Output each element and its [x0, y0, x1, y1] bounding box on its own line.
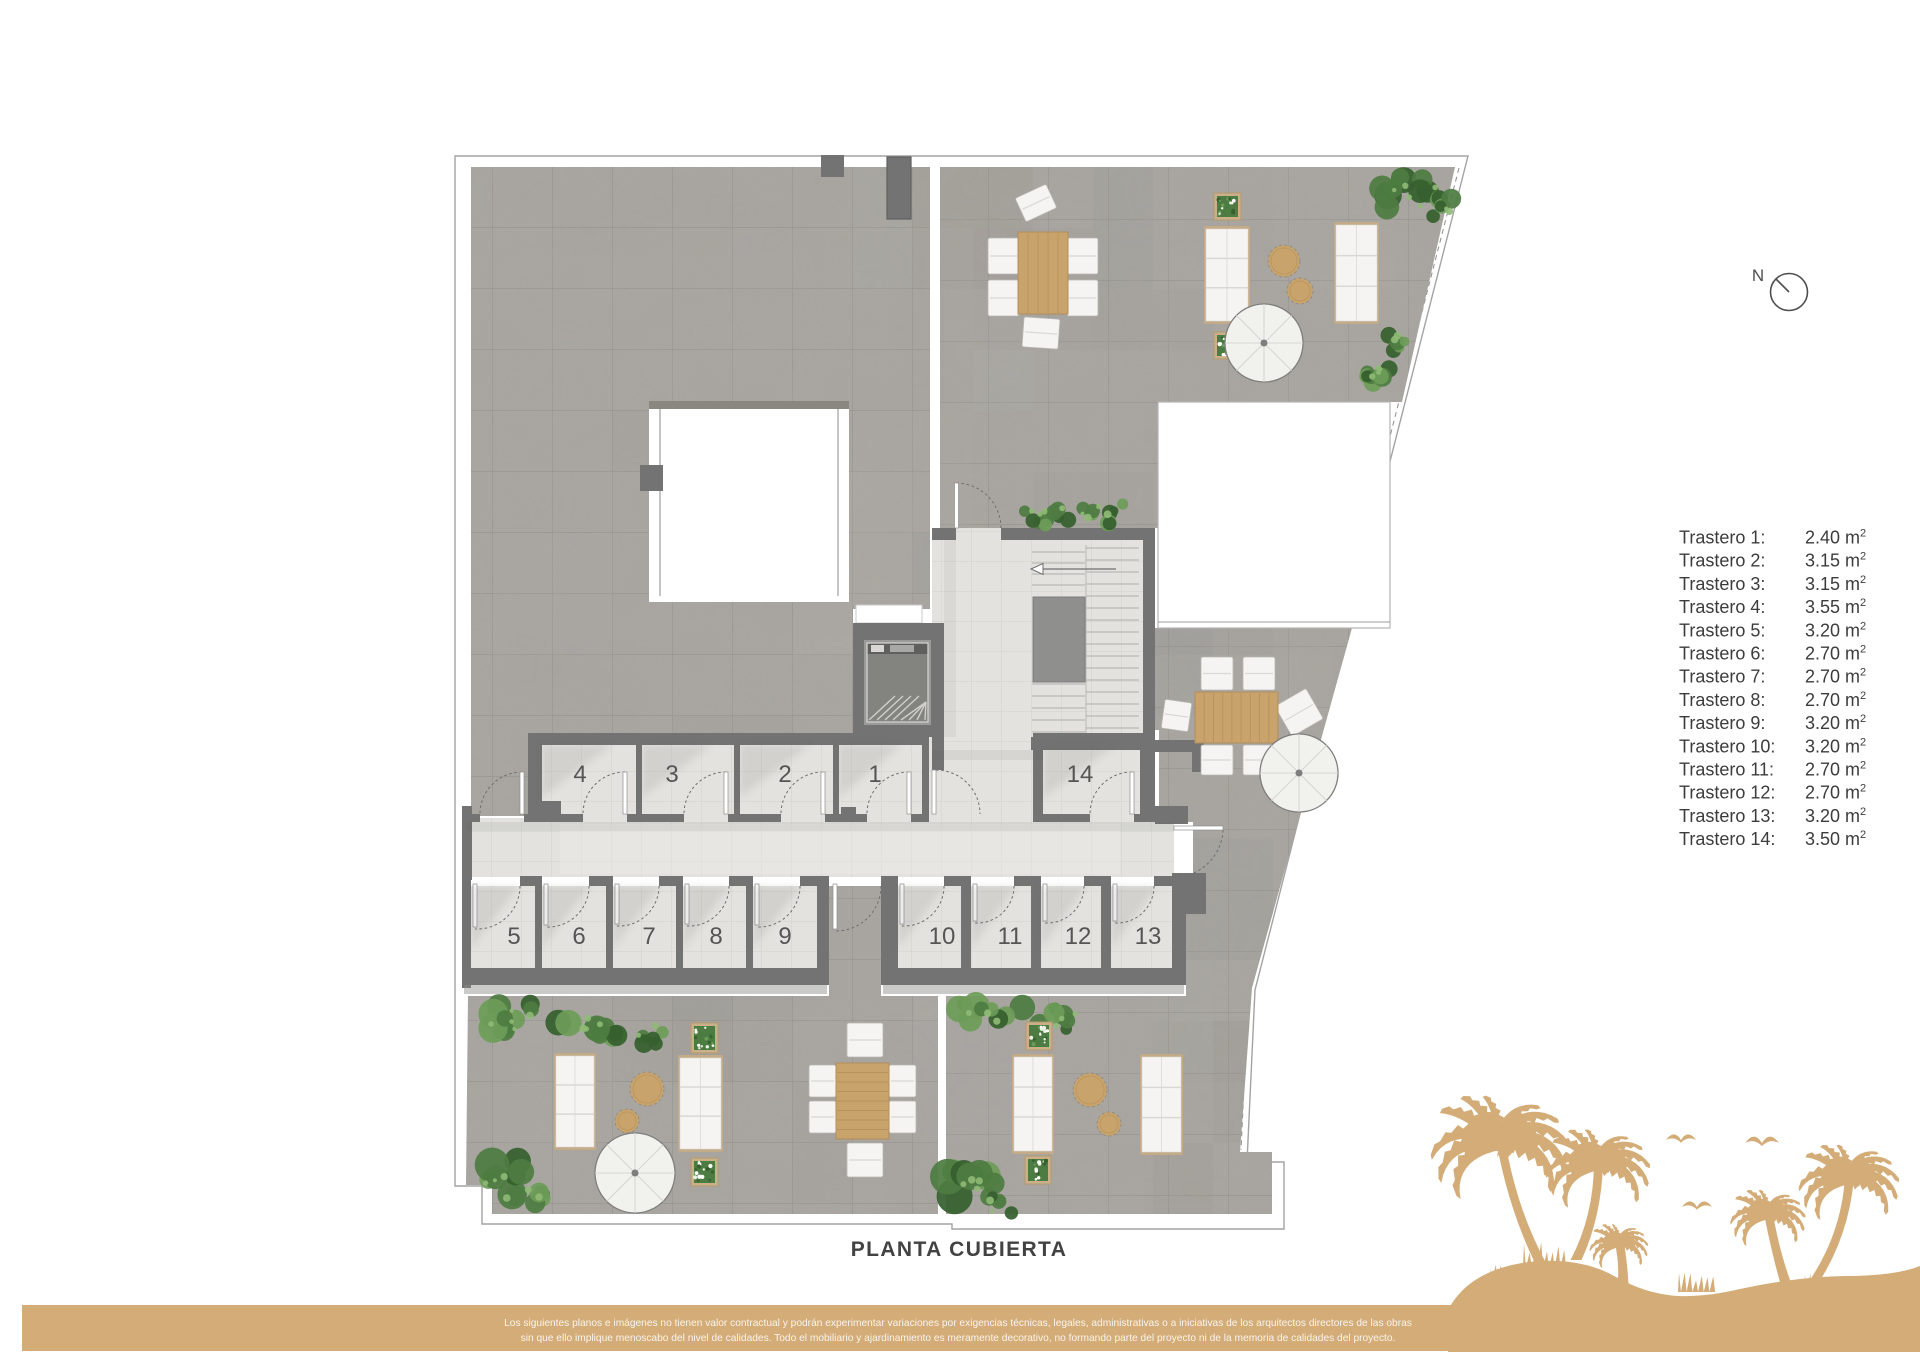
svg-text:2.70 m2: 2.70 m2 [1805, 760, 1866, 780]
svg-text:Trastero 4:: Trastero 4: [1679, 597, 1765, 617]
svg-text:Trastero 13:: Trastero 13: [1679, 806, 1775, 826]
svg-text:2.70 m2: 2.70 m2 [1805, 783, 1866, 803]
svg-text:7: 7 [642, 923, 655, 950]
svg-text:PLANTA CUBIERTA: PLANTA CUBIERTA [851, 1238, 1068, 1261]
svg-text:3.15 m2: 3.15 m2 [1805, 551, 1866, 571]
svg-text:Trastero 11:: Trastero 11: [1679, 760, 1774, 780]
svg-text:Trastero 9:: Trastero 9: [1679, 713, 1765, 733]
svg-text:2.40 m2: 2.40 m2 [1805, 528, 1866, 548]
svg-text:6: 6 [572, 923, 585, 950]
svg-text:3.20 m2: 3.20 m2 [1805, 620, 1866, 640]
svg-text:Trastero 6:: Trastero 6: [1679, 644, 1765, 664]
svg-text:13: 13 [1135, 923, 1162, 950]
svg-text:sin que ello implique menoscab: sin que ello implique menoscabo del nive… [521, 1333, 1396, 1344]
svg-text:Trastero 5:: Trastero 5: [1679, 620, 1765, 640]
svg-text:Trastero 10:: Trastero 10: [1679, 736, 1775, 756]
svg-text:3.20 m2: 3.20 m2 [1805, 713, 1866, 733]
svg-text:Trastero 7:: Trastero 7: [1679, 667, 1765, 687]
svg-text:3.50 m2: 3.50 m2 [1805, 829, 1866, 849]
svg-text:3: 3 [665, 761, 678, 788]
svg-text:9: 9 [778, 923, 791, 950]
svg-text:Los siguientes planos e imágen: Los siguientes planos e imágenes no tien… [504, 1318, 1412, 1329]
svg-text:5: 5 [507, 923, 520, 950]
svg-text:11: 11 [998, 923, 1023, 950]
svg-text:3.20 m2: 3.20 m2 [1805, 806, 1866, 826]
svg-text:Trastero 8:: Trastero 8: [1679, 690, 1765, 710]
svg-text:3.15 m2: 3.15 m2 [1805, 574, 1866, 594]
svg-text:2.70 m2: 2.70 m2 [1805, 667, 1866, 687]
svg-text:10: 10 [929, 923, 956, 950]
svg-text:2: 2 [778, 761, 791, 788]
svg-text:14: 14 [1067, 761, 1094, 788]
svg-text:8: 8 [709, 923, 722, 950]
svg-text:1: 1 [868, 761, 881, 788]
svg-text:Trastero 3:: Trastero 3: [1679, 574, 1765, 594]
svg-text:4: 4 [573, 761, 586, 788]
svg-text:12: 12 [1065, 923, 1092, 950]
svg-text:3.20 m2: 3.20 m2 [1805, 736, 1866, 756]
svg-text:N: N [1752, 266, 1764, 285]
svg-text:Trastero 2:: Trastero 2: [1679, 551, 1765, 571]
svg-text:Trastero 14:: Trastero 14: [1679, 829, 1775, 849]
svg-text:2.70 m2: 2.70 m2 [1805, 644, 1866, 664]
svg-text:3.55 m2: 3.55 m2 [1805, 597, 1866, 617]
svg-text:Trastero 1:: Trastero 1: [1679, 528, 1765, 548]
svg-text:Trastero 12:: Trastero 12: [1679, 783, 1775, 803]
svg-text:2.70 m2: 2.70 m2 [1805, 690, 1866, 710]
